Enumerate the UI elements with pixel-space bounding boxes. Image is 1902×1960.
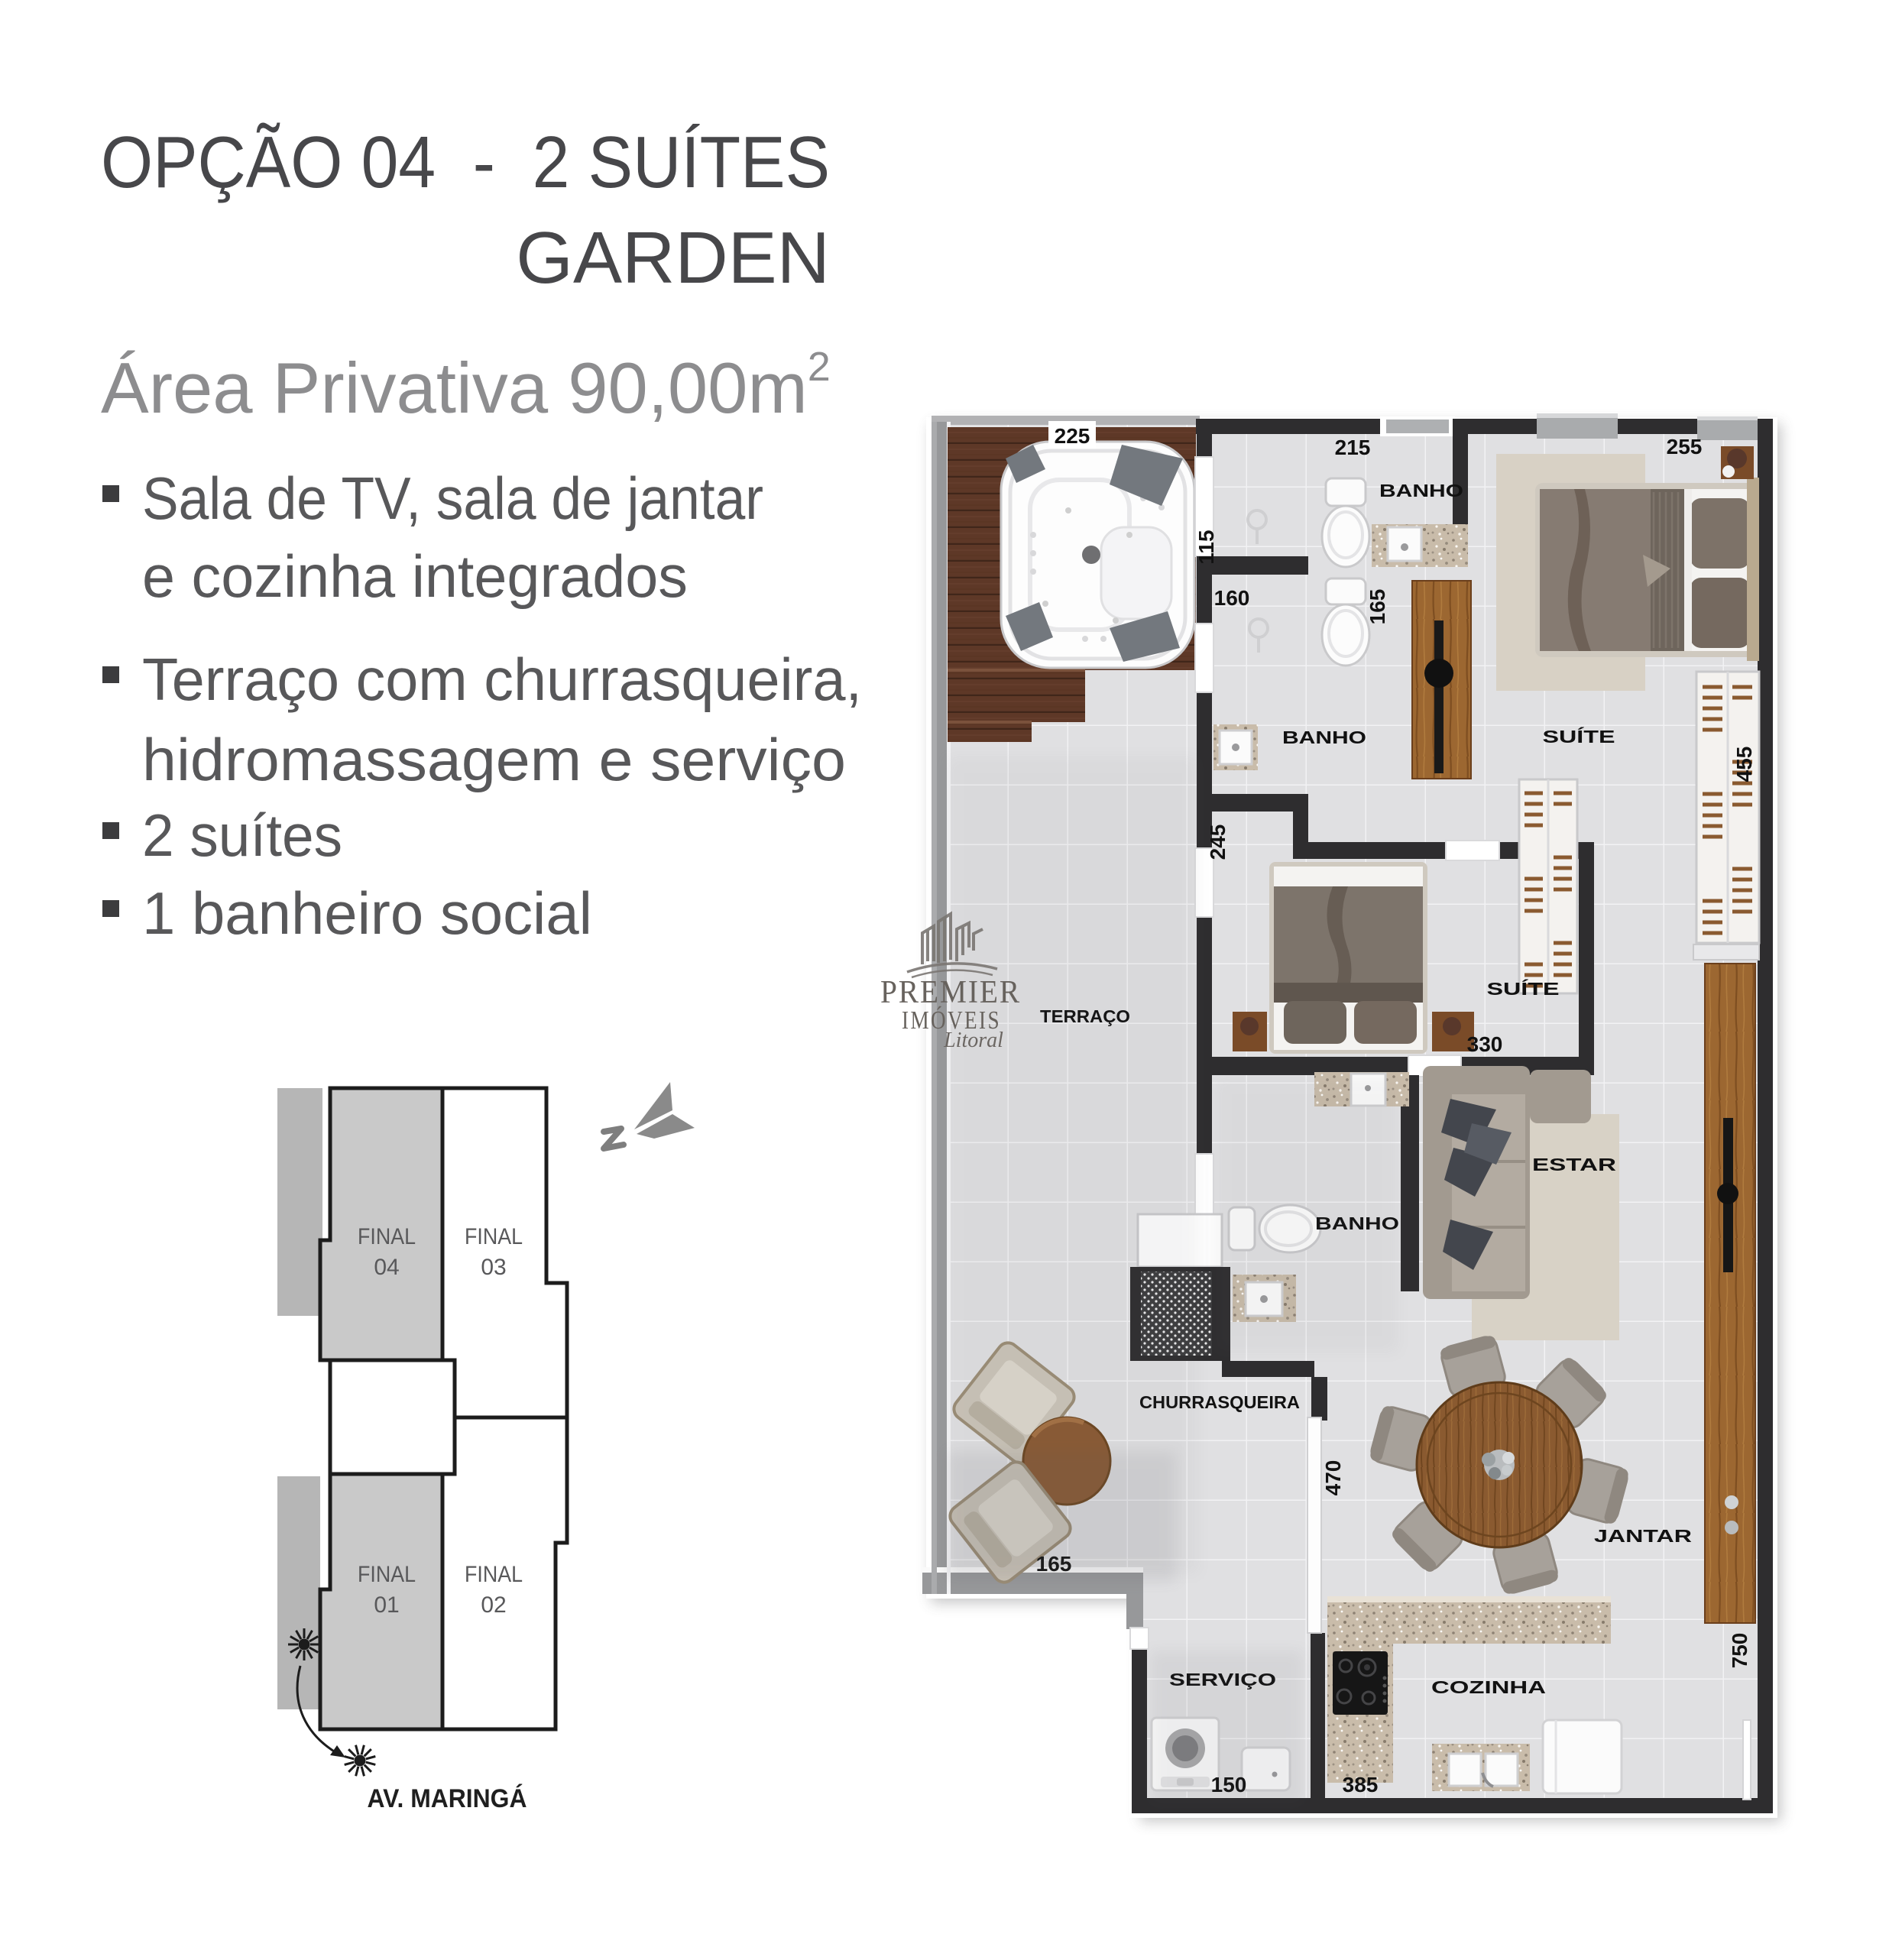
svg-text:215: 215 bbox=[1335, 436, 1371, 459]
svg-text:245: 245 bbox=[1206, 824, 1230, 860]
svg-text:FINAL: FINAL bbox=[358, 1224, 416, 1249]
svg-text:SUÍTE: SUÍTE bbox=[1543, 726, 1615, 747]
svg-text:AV. MARINGÁ: AV. MARINGÁ bbox=[368, 1784, 527, 1813]
svg-text:01: 01 bbox=[374, 1592, 399, 1618]
svg-text:03: 03 bbox=[481, 1255, 506, 1280]
svg-text:165: 165 bbox=[1366, 589, 1389, 625]
svg-text:SUÍTE: SUÍTE bbox=[1487, 978, 1560, 999]
svg-text:1 banheiro social: 1 banheiro social bbox=[142, 880, 592, 947]
svg-text:470: 470 bbox=[1321, 1460, 1345, 1496]
svg-text:ESTAR: ESTAR bbox=[1532, 1155, 1617, 1174]
svg-text:02: 02 bbox=[481, 1592, 506, 1618]
svg-text:FINAL: FINAL bbox=[465, 1562, 523, 1587]
svg-text:BANHO: BANHO bbox=[1379, 481, 1463, 501]
svg-text:Área Privativa 90,00m2: Área Privativa 90,00m2 bbox=[101, 344, 831, 428]
svg-text:e cozinha integrados: e cozinha integrados bbox=[142, 543, 688, 610]
svg-text:hidromassagem e serviço: hidromassagem e serviço bbox=[142, 726, 846, 793]
svg-text:Sala de TV, sala de jantar: Sala de TV, sala de jantar bbox=[142, 465, 763, 532]
svg-text:Litoral: Litoral bbox=[943, 1029, 1003, 1052]
svg-text:JANTAR: JANTAR bbox=[1594, 1526, 1693, 1546]
svg-text:PREMIER: PREMIER bbox=[880, 975, 1021, 1010]
svg-text:115: 115 bbox=[1194, 530, 1218, 564]
svg-text:160: 160 bbox=[1214, 586, 1250, 610]
svg-text:GARDEN: GARDEN bbox=[516, 217, 830, 299]
svg-text:FINAL: FINAL bbox=[465, 1224, 523, 1249]
svg-text:OPÇÃO 04 - 2 SUÍTES: OPÇÃO 04 - 2 SUÍTES bbox=[101, 121, 830, 203]
svg-text:04: 04 bbox=[374, 1255, 399, 1280]
svg-text:2 suítes: 2 suítes bbox=[142, 802, 342, 869]
svg-text:255: 255 bbox=[1667, 435, 1703, 458]
svg-text:330: 330 bbox=[1467, 1032, 1503, 1056]
svg-text:COZINHA: COZINHA bbox=[1431, 1677, 1546, 1697]
svg-text:BANHO: BANHO bbox=[1282, 727, 1366, 747]
svg-text:385: 385 bbox=[1343, 1773, 1379, 1796]
svg-text:225: 225 bbox=[1055, 424, 1090, 448]
svg-text:Terraço com churrasqueira,: Terraço com churrasqueira, bbox=[142, 646, 862, 713]
svg-text:455: 455 bbox=[1732, 747, 1756, 782]
svg-text:FINAL: FINAL bbox=[358, 1562, 416, 1587]
svg-text:750: 750 bbox=[1728, 1633, 1751, 1669]
